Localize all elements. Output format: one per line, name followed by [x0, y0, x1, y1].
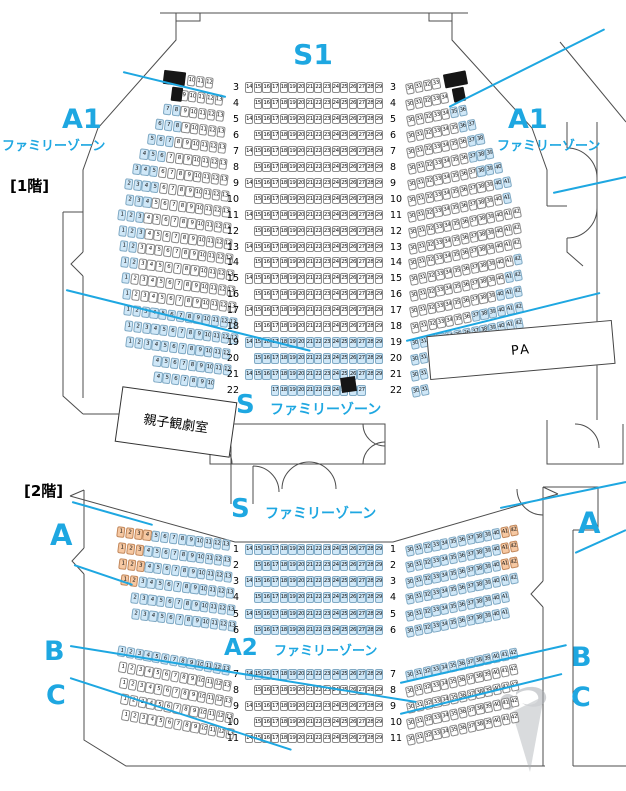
- room-label: 親子観劇室: [142, 408, 209, 436]
- zone-label-s1: S1: [280, 40, 346, 69]
- zone-sublabel-a1-right: ファミリーゾーン: [497, 140, 600, 154]
- zone-line: [70, 677, 293, 751]
- zone-line: [72, 501, 153, 526]
- zone-label-a2: A2: [224, 636, 258, 660]
- zone-line: [449, 28, 606, 108]
- pa-label: PA: [510, 342, 531, 359]
- floor-label-2f: [2階]: [24, 484, 63, 500]
- zone-label-a1-right: A1: [508, 106, 548, 134]
- zone-label-c-left: C: [46, 682, 66, 710]
- zone-sublabel-s-1f: ファミリーゾーン: [270, 403, 381, 418]
- zone-line: [74, 564, 134, 586]
- zone-line: [500, 481, 626, 509]
- zone-label-s-2f: S: [231, 496, 250, 523]
- zone-label-b-right: B: [571, 644, 592, 672]
- zone-sublabel-s-2f: ファミリーゾーン: [265, 507, 376, 522]
- zone-label-a1-left: A1: [62, 106, 102, 134]
- zone-line: [553, 176, 626, 194]
- zone-label-b-left: B: [44, 638, 65, 666]
- zone-label-c-right: C: [571, 684, 591, 712]
- zone-sublabel-a2: ファミリーゾーン: [274, 645, 377, 659]
- zone-label-s-1f: S: [236, 392, 255, 419]
- zone-line: [66, 289, 311, 352]
- zone-sublabel-a1-left: ファミリーゾーン: [2, 140, 105, 154]
- zone-line: [123, 71, 226, 98]
- zone-label-a-right: A: [578, 508, 600, 538]
- floor-label-1f: [1階]: [10, 179, 49, 195]
- theater-seating-chart: 1011129101112137891011121367891011121356…: [0, 0, 626, 791]
- zone-label-a-left: A: [50, 520, 72, 550]
- zone-line: [400, 673, 562, 715]
